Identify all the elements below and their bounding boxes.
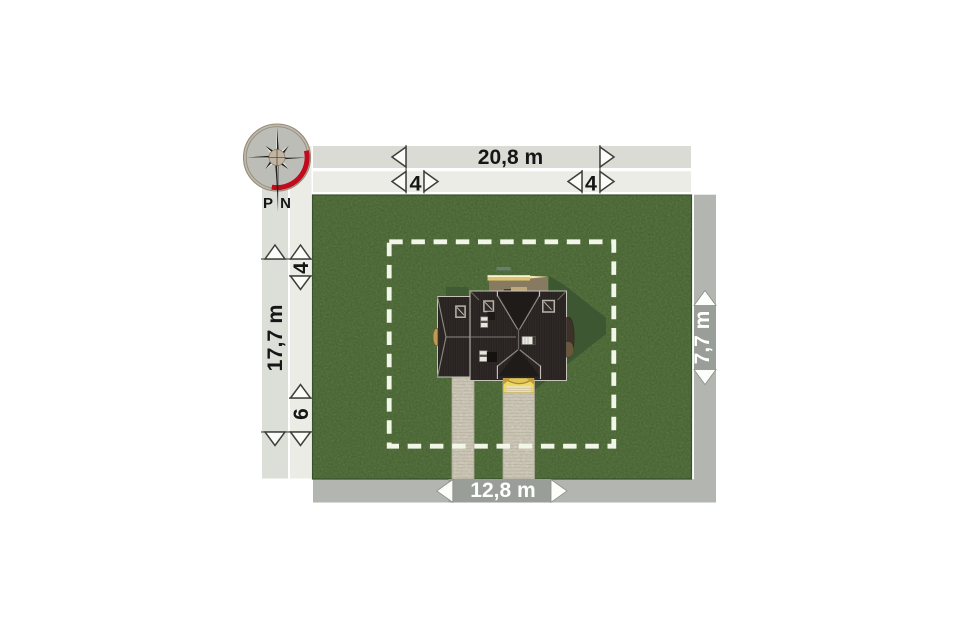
svg-text:20,8 m: 20,8 m	[478, 146, 543, 169]
svg-text:P: P	[263, 195, 273, 212]
svg-text:4: 4	[410, 172, 422, 196]
svg-text:6: 6	[290, 408, 313, 420]
svg-text:12,8 m: 12,8 m	[470, 479, 535, 502]
svg-text:17,7 m: 17,7 m	[263, 305, 287, 372]
svg-text:4: 4	[290, 262, 313, 274]
svg-text:4: 4	[585, 172, 597, 196]
svg-text:7,7 m: 7,7 m	[691, 311, 714, 365]
svg-text:N: N	[280, 195, 291, 212]
